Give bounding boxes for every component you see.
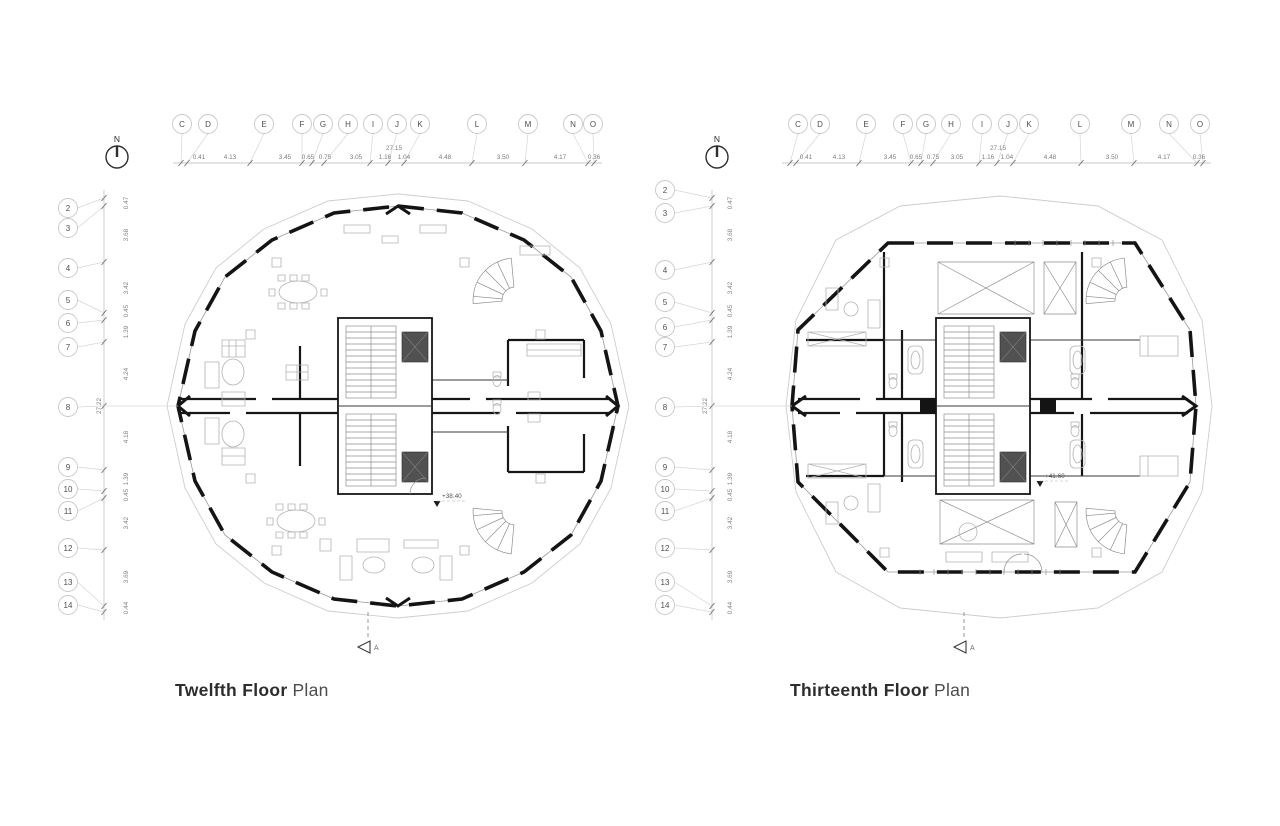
grid-leader	[250, 134, 264, 164]
column-grid-label: M	[1128, 120, 1135, 129]
grid-leader	[675, 605, 713, 612]
column-dimension-value: 0.41	[800, 154, 813, 161]
column-grid-label: L	[475, 120, 480, 129]
grid-leader	[472, 134, 477, 164]
elevator	[1000, 332, 1026, 362]
column-grid-label: F	[901, 120, 906, 129]
column-grid-label: N	[570, 120, 576, 129]
grid-leader	[78, 198, 105, 208]
grid-leader	[370, 134, 373, 164]
column-grid-label: H	[345, 120, 351, 129]
row-grid-label: 11	[661, 507, 670, 516]
grid-leader	[675, 206, 713, 213]
column-grid-label: J	[395, 120, 399, 129]
column-dimension-value: 3.50	[1106, 154, 1119, 161]
row-grid-label: 10	[64, 485, 73, 494]
grid-leader	[78, 498, 105, 511]
row-grid-label: 6	[66, 319, 71, 328]
plans-canvas: CDEFGHIJKLMNO0.414.133.450.650.753.051.1…	[0, 0, 1280, 826]
column-dimension-value: 1.04	[1001, 154, 1014, 161]
grid-leader	[675, 342, 713, 347]
grid-leader	[675, 548, 713, 550]
column-grid-label: H	[948, 120, 954, 129]
row-grid-label: 12	[661, 544, 670, 553]
row-dimension-value: 0.45	[727, 488, 734, 501]
row-grid-label: 8	[66, 403, 71, 412]
row-grid-label: 14	[661, 601, 670, 610]
north-label: N	[714, 134, 720, 144]
grid-leader	[78, 489, 105, 491]
column-dimension-value: 4.48	[439, 154, 452, 161]
column-dimension-value: 0.36	[1193, 154, 1206, 161]
row-dimension-value: 0.47	[727, 196, 734, 209]
row-dimension-value: 4.24	[727, 367, 734, 380]
row-dimension-value: 4.18	[123, 430, 130, 443]
row-grid-label: 12	[64, 544, 73, 553]
grid-leader	[78, 548, 105, 550]
row-dimension-value: 0.44	[727, 601, 734, 614]
grid-leader	[790, 134, 798, 164]
grid-leader	[675, 320, 713, 327]
section-marker	[358, 641, 370, 653]
column-dimension-value: 1.04	[398, 154, 411, 161]
structural-post	[920, 398, 936, 414]
row-dimension-value: 3.42	[123, 281, 130, 294]
section-label: A	[970, 645, 975, 652]
row-grid-label: 14	[64, 601, 73, 610]
grid-leader	[1131, 134, 1134, 164]
title-bold: Thirteenth Floor	[790, 680, 929, 700]
drawing-sheet: CDEFGHIJKLMNO0.414.133.450.650.753.051.1…	[0, 0, 1280, 826]
column-grid-label: J	[1006, 120, 1010, 129]
row-dimension-value: 3.68	[123, 228, 130, 241]
row-dimension-value: 3.69	[123, 570, 130, 583]
elevator	[1000, 452, 1026, 482]
column-grid-label: F	[300, 120, 305, 129]
column-grid-label: I	[372, 120, 374, 129]
column-dimension-value: 0.75	[927, 154, 940, 161]
grid-leader	[78, 582, 105, 606]
column-grid-label: E	[261, 120, 266, 129]
grid-leader	[675, 302, 713, 313]
column-dimension-value: 4.13	[224, 154, 237, 161]
column-total-dimension: 27.15	[386, 145, 402, 152]
column-dimension-value: 1.16	[982, 154, 995, 161]
row-grid-label: 4	[66, 264, 71, 273]
column-dimension-value: 0.36	[588, 154, 601, 161]
grid-leader	[675, 467, 713, 470]
row-grid-label: 4	[663, 266, 668, 275]
grid-leader	[78, 300, 105, 313]
row-grid-label: 3	[663, 209, 668, 218]
row-dimension-value: 0.45	[123, 304, 130, 317]
column-grid-label: I	[981, 120, 983, 129]
grid-leader	[675, 582, 713, 606]
title-regular: Plan	[292, 680, 328, 700]
column-grid-label: E	[863, 120, 868, 129]
title-regular: Plan	[934, 680, 970, 700]
row-grid-label: 9	[663, 463, 668, 472]
row-dimension-value: 3.69	[727, 570, 734, 583]
column-dimension-value: 3.45	[884, 154, 897, 161]
twelfth-floor-plan-drawing	[167, 194, 629, 618]
row-dimension-value: 1.39	[123, 472, 130, 485]
row-grid-label: 2	[66, 204, 71, 213]
row-grid-label: 7	[66, 343, 71, 352]
column-dimension-value: 0.41	[193, 154, 206, 161]
title-bold: Twelfth Floor	[175, 680, 287, 700]
column-grid-label: N	[1166, 120, 1172, 129]
row-dimension-value: 0.45	[727, 304, 734, 317]
row-grid-label: 7	[663, 343, 668, 352]
column-grid-label: L	[1078, 120, 1083, 129]
column-grid-label: O	[1197, 120, 1203, 129]
column-dimension-value: 4.48	[1044, 154, 1057, 161]
grid-leader	[525, 134, 528, 164]
row-dimension-value: 3.42	[123, 516, 130, 529]
stair-core	[338, 318, 432, 494]
north-label: N	[114, 134, 120, 144]
row-grid-label: 11	[64, 507, 73, 516]
grid-leader	[78, 206, 105, 228]
column-dimension-value: 3.45	[279, 154, 292, 161]
column-grid-label: M	[525, 120, 532, 129]
row-grid-label: 8	[663, 403, 668, 412]
twelfth-floor-title: Twelfth FloorPlan	[175, 680, 329, 701]
row-grid-label: 13	[661, 578, 670, 587]
grid-leader	[1013, 134, 1029, 164]
column-dimension-value: 0.65	[302, 154, 315, 161]
grid-leader	[181, 134, 182, 164]
column-dimension-value: 0.75	[319, 154, 332, 161]
column-dimension-value: 4.17	[554, 154, 567, 161]
column-dimension-value: 3.50	[497, 154, 510, 161]
column-grid-label: D	[205, 120, 211, 129]
column-dimension-value: 4.13	[833, 154, 846, 161]
elevator	[402, 452, 428, 482]
grid-leader	[675, 190, 713, 198]
column-grid-label: K	[1026, 120, 1032, 129]
thirteenth-floor-plan-drawing	[786, 196, 1212, 618]
grid-leader	[675, 489, 713, 491]
column-grid-label: O	[590, 120, 596, 129]
level-value: +38.40	[442, 493, 462, 500]
row-grid-label: 5	[663, 298, 668, 307]
column-grid-label: K	[417, 120, 423, 129]
row-dimension-value: 1.39	[727, 472, 734, 485]
column-dimension-value: 0.65	[910, 154, 923, 161]
grid-leader	[573, 134, 588, 164]
grid-leader	[78, 467, 105, 470]
row-dimension-value: 0.45	[123, 488, 130, 501]
section-marker	[954, 641, 966, 653]
row-grid-label: 2	[663, 186, 668, 195]
level-value: +41.60	[1045, 473, 1065, 480]
row-grid-label: 9	[66, 463, 71, 472]
column-dimension-value: 3.05	[951, 154, 964, 161]
column-grid-label: G	[923, 120, 929, 129]
column-total-dimension: 27.15	[990, 145, 1006, 152]
row-total-dimension: 27.22	[702, 398, 709, 414]
thirteenth-floor-title: Thirteenth FloorPlan	[790, 680, 970, 701]
row-total-dimension: 27.22	[96, 398, 103, 414]
row-dimension-value: 4.18	[727, 430, 734, 443]
grid-leader	[78, 262, 105, 268]
structural-post	[1040, 398, 1056, 414]
row-dimension-value: 1.39	[727, 325, 734, 338]
row-grid-label: 13	[64, 578, 73, 587]
column-grid-label: C	[179, 120, 185, 129]
column-dimension-value: 4.17	[1158, 154, 1171, 161]
row-dimension-value: 0.44	[123, 601, 130, 614]
row-dimension-value: 3.68	[727, 228, 734, 241]
column-dimension-value: 3.05	[350, 154, 363, 161]
grid-leader	[78, 342, 105, 347]
column-grid-label: G	[320, 120, 326, 129]
row-grid-label: 6	[663, 323, 668, 332]
row-grid-label: 10	[661, 485, 670, 494]
column-grid-label: C	[795, 120, 801, 129]
grid-leader	[859, 134, 866, 164]
row-dimension-value: 4.24	[123, 367, 130, 380]
column-dimension-value: 1.16	[379, 154, 392, 161]
row-dimension-value: 0.47	[123, 196, 130, 209]
grid-leader	[78, 605, 105, 612]
column-grid-label: D	[817, 120, 823, 129]
row-dimension-value: 3.42	[727, 516, 734, 529]
grid-leader	[1080, 134, 1081, 164]
row-grid-label: 3	[66, 224, 71, 233]
section-label: A	[374, 645, 379, 652]
row-grid-label: 5	[66, 296, 71, 305]
elevator	[402, 332, 428, 362]
row-dimension-value: 1.39	[123, 325, 130, 338]
grid-leader	[675, 498, 713, 511]
row-dimension-value: 3.42	[727, 281, 734, 294]
grid-leader	[675, 262, 713, 270]
grid-leader	[78, 320, 105, 323]
